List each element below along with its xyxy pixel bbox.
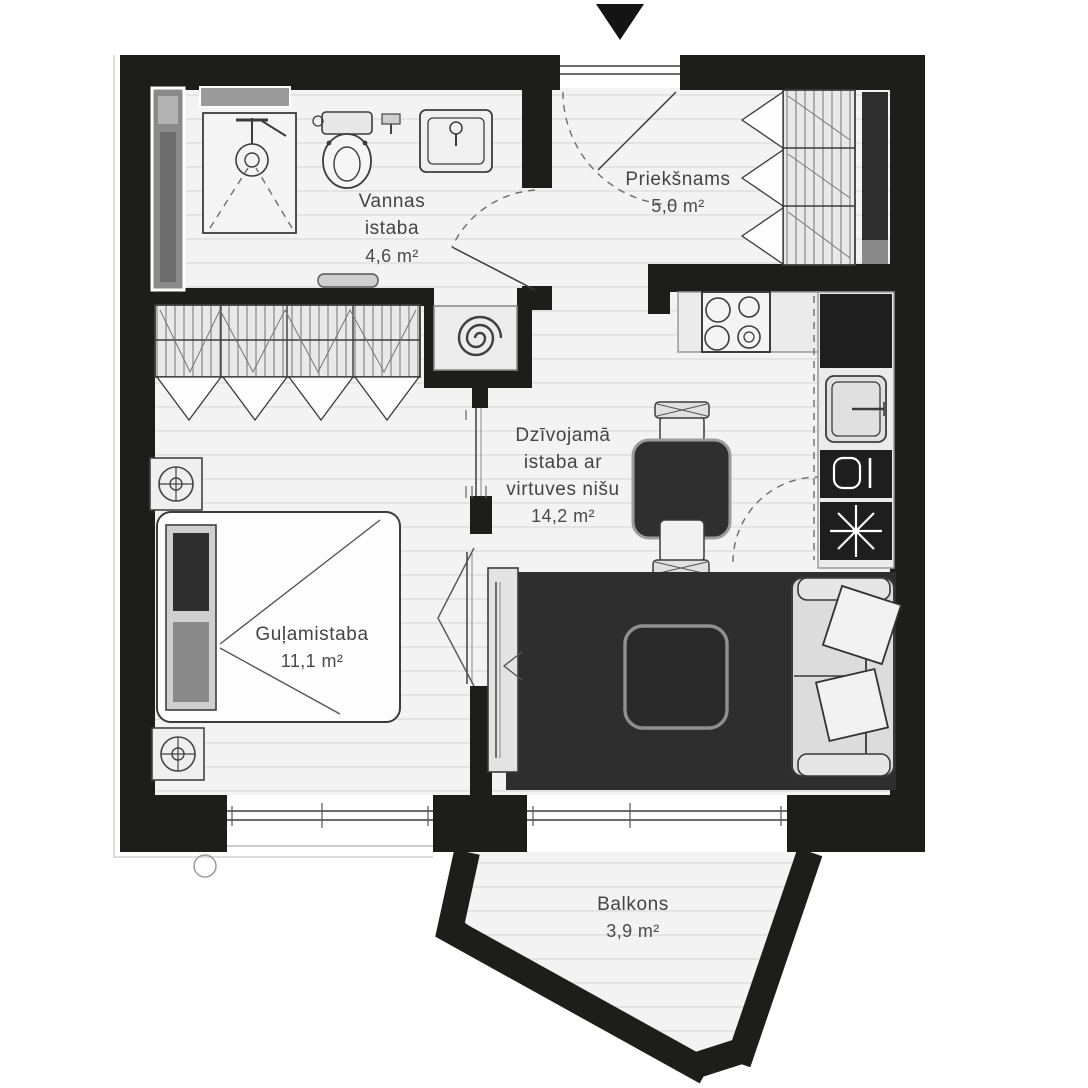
balcony-label: Balkons (597, 894, 669, 915)
bathroom-label-2: istaba (365, 218, 419, 239)
living-label: Dzīvojamā (515, 425, 610, 446)
coffee-table (625, 626, 727, 728)
nightstand (150, 458, 202, 510)
bathroom-shelf (200, 87, 290, 107)
bathroom-area: 4,6 m² (365, 246, 418, 266)
radiator (152, 88, 184, 290)
living-label-2: istaba ar (524, 452, 602, 473)
chair-icon (653, 520, 709, 576)
tall-cabinet (820, 294, 892, 368)
bed-icon (157, 512, 400, 722)
pillow (816, 669, 888, 741)
hallway-fixtures (742, 90, 888, 265)
living-room (488, 568, 901, 790)
sofa-icon (792, 578, 901, 776)
boiler-icon (820, 450, 892, 498)
extract-fan-icon (820, 502, 892, 560)
bedroom-area: 11,1 m² (281, 651, 344, 671)
survey-point-marker (194, 855, 216, 877)
balcony-area: 3,9 m² (606, 921, 659, 941)
entrance-arrow-icon (596, 4, 644, 40)
duct-shaft (862, 92, 888, 264)
washbasin-icon (420, 110, 492, 172)
floorplan-canvas: Vannas istaba 4,6 m² Priekšnams 5,0 m² D… (0, 0, 1088, 1088)
towel-rail (318, 274, 378, 287)
hallway-label: Priekšnams (625, 169, 730, 190)
hall-wardrobe (742, 90, 855, 265)
bedroom-window-opening (227, 795, 433, 852)
kitchen-sink-icon (826, 376, 886, 442)
floorplan-svg: Vannas istaba 4,6 m² Priekšnams 5,0 m² D… (0, 0, 1088, 1088)
living-window-opening (527, 795, 787, 852)
nightstand (152, 728, 204, 780)
bedroom-label: Guļamistaba (255, 624, 368, 645)
bedroom-fixtures (150, 305, 420, 780)
tv-stand (488, 568, 522, 772)
chair-icon (655, 402, 709, 442)
hob-icon (702, 292, 770, 352)
hallway-area: 5,0 m² (651, 196, 704, 216)
bathroom-label: Vannas (359, 191, 426, 212)
living-area: 14,2 m² (531, 506, 595, 526)
shower-icon (203, 113, 296, 233)
heating-coil-icon (434, 306, 517, 370)
living-label-3: virtuves nišu (506, 479, 619, 500)
